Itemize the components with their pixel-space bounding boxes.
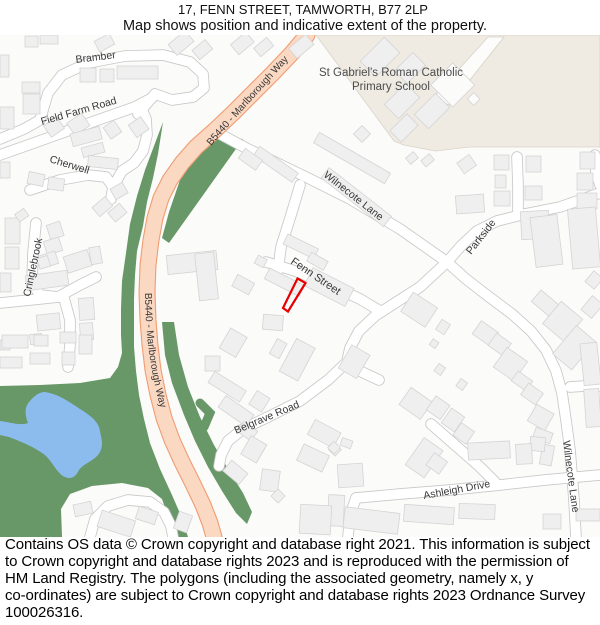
svg-text:Primary School: Primary School	[352, 81, 430, 93]
svg-text:St Gabriel's Roman Catholic: St Gabriel's Roman Catholic	[319, 67, 463, 79]
